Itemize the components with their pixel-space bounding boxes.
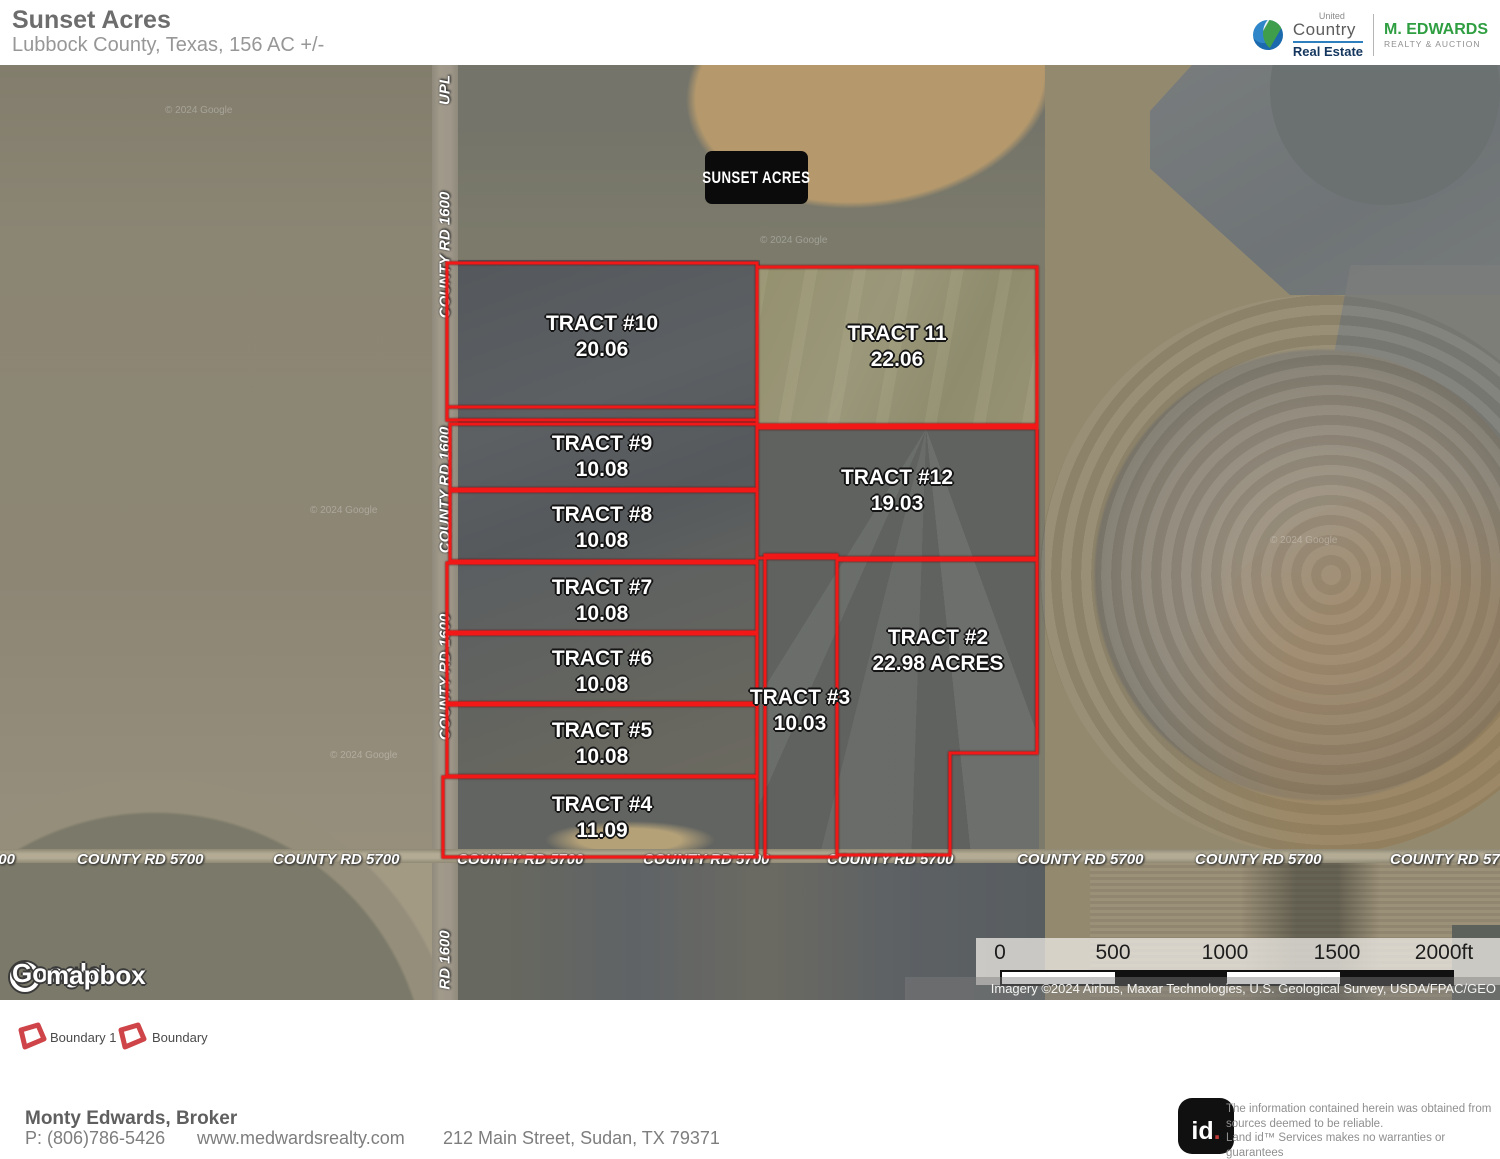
imagery-attribution: Imagery ©2024 Airbus, Maxar Technologies… <box>905 977 1500 1000</box>
united-country-name-label: Country <box>1293 21 1363 38</box>
page-subtitle: Lubbock County, Texas, 156 AC +/- <box>12 34 324 57</box>
tract-label-4: TRACT #411.09 <box>552 792 652 844</box>
tract-label-6: TRACT #610.08 <box>552 646 652 698</box>
tract-label-9: TRACT #910.08 <box>552 431 652 483</box>
mapbox-logo[interactable]: mapbox <box>46 960 146 991</box>
scale-tick: 0 <box>994 941 1006 965</box>
tract-boundaries <box>0 65 1500 1000</box>
tract-label-2: TRACT #222.98 ACRES <box>872 625 1003 677</box>
brokerage-logo: United Country Real Estate M. EDWARDS RE… <box>1253 12 1488 58</box>
real-estate-label: Real Estate <box>1293 41 1363 58</box>
map-canvas[interactable]: © 2024 Google © 2024 Google © 2024 Googl… <box>0 65 1500 1000</box>
tract-label-10: TRACT #1020.06 <box>546 311 658 363</box>
agency-name: M. EDWARDS <box>1384 21 1488 39</box>
boundary-icon <box>116 1022 148 1050</box>
broker-website[interactable]: www.medwardsrealty.com <box>197 1128 405 1149</box>
broker-phone: P: (806)786-5426 <box>25 1128 165 1149</box>
legend-label-boundary-1: Boundary 1 <box>50 1030 117 1045</box>
scale-tick: 500 <box>1095 941 1130 965</box>
broker-address: 212 Main Street, Sudan, TX 79371 <box>443 1128 720 1149</box>
scale-tick: 2000ft <box>1415 941 1473 965</box>
page: Sunset Acres Lubbock County, Texas, 156 … <box>0 0 1500 1159</box>
tract-label-7: TRACT #710.08 <box>552 575 652 627</box>
scale-tick: 1500 <box>1314 941 1361 965</box>
united-country-globe-icon <box>1253 20 1283 50</box>
broker-name: Monty Edwards, Broker <box>25 1108 237 1130</box>
tract-label-3: TRACT #310.03 <box>750 685 850 737</box>
tract-label-5: TRACT #510.08 <box>552 718 652 770</box>
boundary-1-icon <box>16 1022 48 1050</box>
legend-label-boundary: Boundary <box>152 1030 208 1045</box>
disclaimer: The information contained herein was obt… <box>1226 1102 1500 1159</box>
brand-divider <box>1373 14 1374 56</box>
tract-label-11: TRACT 1122.06 <box>847 321 946 373</box>
tract-label-8: TRACT #810.08 <box>552 502 652 554</box>
page-title: Sunset Acres <box>12 6 171 35</box>
property-name-badge: SUNSET ACRES <box>705 151 808 204</box>
property-name: SUNSET ACRES <box>702 168 810 188</box>
agency-subtitle: REALTY & AUCTION <box>1384 39 1488 49</box>
scale-tick: 1000 <box>1202 941 1249 965</box>
tract-label-12: TRACT #1219.03 <box>841 465 953 517</box>
